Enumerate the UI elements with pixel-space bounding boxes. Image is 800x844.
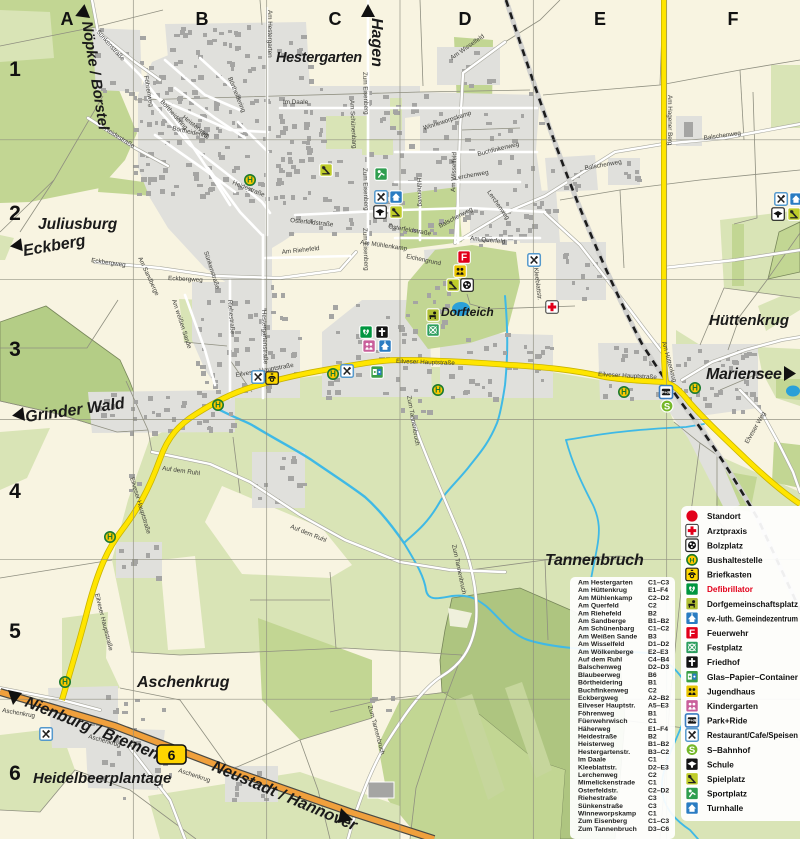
svg-text:B1–B2: B1–B2 (648, 741, 669, 748)
svg-text:2: 2 (9, 202, 21, 225)
svg-text:Füerwehrwisch: Füerwehrwisch (578, 718, 627, 725)
svg-text:H: H (330, 370, 336, 379)
svg-text:E: E (594, 9, 606, 29)
svg-text:Lerchenweg: Lerchenweg (578, 772, 618, 779)
svg-text:Auf dem Ruhl: Auf dem Ruhl (578, 657, 622, 664)
svg-text:A: A (61, 9, 74, 29)
svg-text:Hagen: Hagen (368, 18, 385, 67)
svg-text:B3: B3 (648, 633, 657, 640)
svg-text:Buchfinkenweg: Buchfinkenweg (578, 687, 628, 694)
svg-text:Am Weißen Sande: Am Weißen Sande (578, 633, 637, 640)
svg-text:H: H (215, 401, 221, 410)
svg-text:Im Daale: Im Daale (578, 757, 606, 764)
svg-text:Mimelickenstrade: Mimelickenstrade (578, 780, 635, 787)
svg-text:A5–E3: A5–E3 (648, 703, 669, 710)
svg-text:B1: B1 (648, 680, 657, 687)
svg-text:Winneworpskamp: Winneworpskamp (578, 811, 636, 818)
svg-text:B2: B2 (648, 610, 657, 617)
svg-text:Dorfgemeinschaftsplatz: Dorfgemeinschaftsplatz (707, 600, 798, 609)
svg-text:Zum Eisenberg: Zum Eisenberg (578, 818, 627, 825)
svg-text:H: H (435, 386, 441, 395)
svg-text:Aschenkrug: Aschenkrug (136, 674, 230, 691)
svg-text:Blaubeerweg: Blaubeerweg (578, 672, 620, 679)
svg-text:Glas–Papier–Container: Glas–Papier–Container (707, 673, 799, 682)
svg-text:Standort: Standort (707, 512, 741, 521)
svg-text:Kindergarten: Kindergarten (707, 702, 758, 711)
svg-text:B1: B1 (648, 710, 657, 717)
svg-text:C2: C2 (648, 603, 657, 610)
svg-text:Am Riehefeld: Am Riehefeld (578, 610, 621, 617)
svg-text:Heisterweg: Heisterweg (578, 741, 614, 748)
svg-text:C2: C2 (648, 687, 657, 694)
svg-text:Am Wölkenberge: Am Wölkenberge (578, 649, 634, 656)
svg-text:ev.-luth. Gemeindezentrum: ev.-luth. Gemeindezentrum (707, 614, 798, 623)
svg-text:Bolzplatz: Bolzplatz (707, 541, 743, 550)
svg-text:D3–C6: D3–C6 (648, 826, 669, 833)
svg-text:Briefkasten: Briefkasten (707, 571, 752, 580)
svg-text:C1: C1 (648, 811, 657, 818)
svg-text:E1–F4: E1–F4 (648, 587, 668, 594)
svg-text:Park+Ride: Park+Ride (707, 717, 748, 726)
svg-text:B2: B2 (648, 734, 657, 741)
svg-text:Juliusburg: Juliusburg (38, 216, 118, 233)
svg-text:Mariensee: Mariensee (706, 366, 782, 383)
svg-text:F: F (728, 9, 739, 29)
svg-text:Osterfeldstr.: Osterfeldstr. (578, 787, 618, 794)
svg-text:Heidestraße: Heidestraße (578, 734, 617, 741)
svg-text:Restaurant/Cafe/Speisen: Restaurant/Cafe/Speisen (707, 731, 798, 740)
svg-text:B6: B6 (648, 672, 657, 679)
svg-text:P+R: P+R (687, 718, 697, 723)
svg-text:C3: C3 (648, 795, 657, 802)
svg-text:Am Querfeld: Am Querfeld (578, 603, 619, 610)
svg-text:C1–C2: C1–C2 (648, 626, 669, 633)
svg-text:S: S (689, 745, 695, 756)
svg-text:4: 4 (9, 480, 21, 503)
svg-text:Jugendhaus: Jugendhaus (707, 687, 756, 696)
svg-text:6: 6 (168, 747, 176, 763)
svg-text:Balschenweg: Balschenweg (578, 664, 621, 671)
svg-text:Heidelbeerplantage: Heidelbeerplantage (33, 770, 171, 787)
svg-text:Schule: Schule (707, 760, 734, 769)
svg-text:Defibrillator: Defibrillator (707, 585, 754, 594)
svg-text:Am Hagener Berg: Am Hagener Berg (666, 95, 673, 146)
svg-text:Sünkenstraße: Sünkenstraße (578, 803, 623, 810)
svg-text:P+R: P+R (661, 390, 671, 395)
svg-text:C1: C1 (648, 757, 657, 764)
svg-text:E1–F4: E1–F4 (648, 726, 668, 733)
svg-text:C3: C3 (648, 803, 657, 810)
svg-text:S–Bahnhof: S–Bahnhof (707, 746, 750, 755)
svg-text:Friedhof: Friedhof (707, 658, 740, 667)
svg-text:D1–D2: D1–D2 (648, 641, 669, 648)
svg-text:5: 5 (9, 620, 21, 643)
svg-text:Am Mühlenkamp: Am Mühlenkamp (578, 595, 632, 602)
svg-text:Am Wisselfeld: Am Wisselfeld (450, 151, 458, 192)
svg-text:C1: C1 (648, 718, 657, 725)
svg-text:B: B (196, 9, 209, 29)
svg-text:C2: C2 (648, 772, 657, 779)
svg-text:Sportplatz: Sportplatz (707, 790, 747, 799)
svg-text:F: F (461, 253, 467, 264)
svg-text:H: H (107, 533, 113, 542)
svg-text:Feuerwehr: Feuerwehr (707, 629, 749, 638)
svg-text:Tannenbruch: Tannenbruch (545, 552, 644, 569)
svg-text:Bushaltestelle: Bushaltestelle (707, 556, 763, 565)
svg-text:C1–C3: C1–C3 (648, 580, 669, 587)
svg-text:Börtheidering: Börtheidering (578, 680, 623, 687)
svg-text:Am Schünenbarg: Am Schünenbarg (578, 626, 634, 633)
svg-text:S: S (664, 401, 670, 412)
svg-text:Riehestraße: Riehestraße (578, 795, 617, 802)
svg-text:D2–D3: D2–D3 (648, 664, 669, 671)
svg-text:B3–C2: B3–C2 (648, 749, 669, 756)
svg-text:A2–B2: A2–B2 (648, 695, 669, 702)
svg-text:C1: C1 (648, 780, 657, 787)
svg-text:Hestergarten: Hestergarten (276, 50, 362, 66)
svg-text:D2–E3: D2–E3 (648, 764, 669, 771)
svg-text:Spielplatz: Spielplatz (707, 775, 745, 784)
svg-text:Kleeblattstr.: Kleeblattstr. (578, 764, 617, 771)
svg-text:Festplatz: Festplatz (707, 644, 743, 653)
svg-text:Am Wisselfeld: Am Wisselfeld (578, 641, 624, 648)
svg-text:Am Hestergarten: Am Hestergarten (578, 580, 633, 587)
svg-text:C2–D2: C2–D2 (648, 787, 669, 794)
svg-text:Hestergartenstr.: Hestergartenstr. (578, 749, 630, 756)
svg-text:D: D (459, 9, 472, 29)
svg-text:Am Hestergarten: Am Hestergarten (266, 10, 273, 58)
svg-text:H: H (247, 176, 253, 185)
svg-text:C1–C3: C1–C3 (648, 818, 669, 825)
svg-text:H: H (692, 384, 698, 393)
svg-text:Turnhalle: Turnhalle (707, 804, 744, 813)
svg-text:6: 6 (9, 762, 21, 785)
svg-text:Föhrenweg: Föhrenweg (578, 710, 614, 717)
svg-text:C: C (329, 9, 342, 29)
svg-text:3: 3 (9, 338, 21, 361)
svg-text:H: H (62, 678, 68, 687)
svg-text:Häherweg: Häherweg (578, 726, 610, 733)
svg-text:Arztpraxis: Arztpraxis (707, 527, 747, 536)
svg-text:B1–B2: B1–B2 (648, 618, 669, 625)
svg-text:Zum Tannenbruch: Zum Tannenbruch (578, 826, 637, 833)
svg-text:Dorfteich: Dorfteich (441, 305, 494, 319)
svg-text:Eckbergweg: Eckbergweg (578, 695, 618, 702)
svg-text:Hüttenkrug: Hüttenkrug (709, 312, 789, 329)
svg-text:E2–E3: E2–E3 (648, 649, 669, 656)
svg-text:C2–D2: C2–D2 (648, 595, 669, 602)
svg-text:F: F (689, 628, 695, 639)
svg-text:H: H (690, 557, 695, 564)
svg-text:Am Hüttenkrug: Am Hüttenkrug (578, 587, 627, 594)
svg-text:C4–B4: C4–B4 (648, 657, 669, 664)
svg-text:Am Sandberge: Am Sandberge (578, 618, 626, 625)
svg-text:H: H (621, 388, 627, 397)
svg-text:1: 1 (9, 58, 21, 81)
svg-text:Im Daale: Im Daale (283, 99, 309, 106)
svg-text:Eilveser Hauptstr.: Eilveser Hauptstr. (578, 703, 636, 710)
